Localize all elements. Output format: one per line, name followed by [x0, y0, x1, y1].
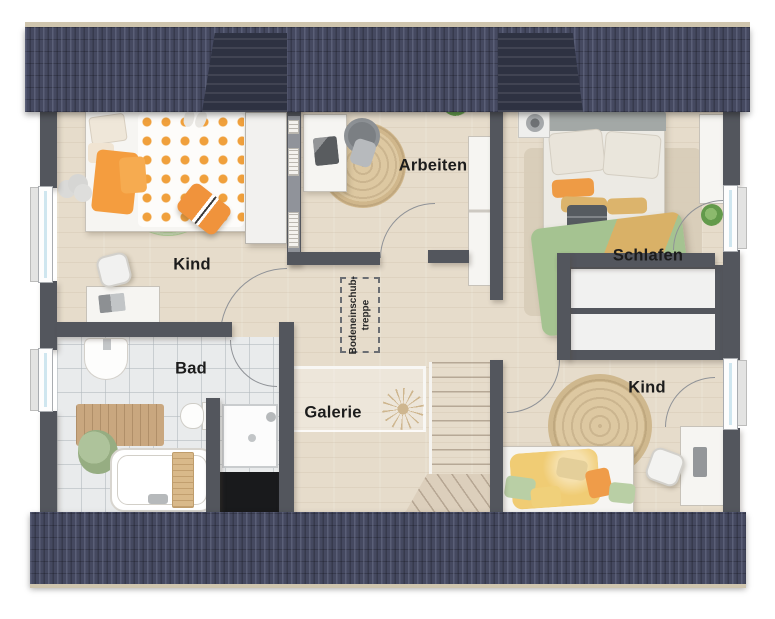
faucet	[103, 339, 111, 350]
room-label-galerie: Galerie	[304, 404, 361, 423]
monitor	[693, 447, 707, 477]
kids-desk-right	[680, 426, 724, 506]
speaker-cone	[526, 114, 544, 132]
window-glass	[729, 190, 732, 247]
wall-ext-left	[40, 281, 57, 350]
floor-void	[220, 472, 279, 513]
window-glass	[44, 353, 47, 407]
floor-plan: Bodeneinschub- treppe Kind Arbeiten Schl…	[0, 0, 775, 619]
monitor	[313, 136, 340, 166]
room-label-arbeiten: Arbeiten	[399, 157, 468, 176]
roof-ridge-line	[25, 22, 750, 27]
roof-top	[25, 27, 750, 112]
wall-bad-galerie	[279, 322, 294, 513]
window-glass	[44, 191, 47, 278]
bath-caddy	[172, 452, 194, 508]
roof-bottom	[30, 512, 746, 586]
bathtub	[110, 448, 214, 512]
cloud-lobe	[74, 184, 92, 202]
built-in-wardrobe	[567, 265, 723, 360]
toilet-bowl	[180, 403, 204, 429]
shower-drain	[248, 434, 256, 442]
wall-ext-right	[723, 428, 740, 515]
wardrobe-shelf	[571, 314, 715, 350]
laptop	[98, 293, 126, 314]
shower	[222, 404, 278, 468]
headboard	[542, 109, 666, 131]
sideboard-arbeiten	[468, 136, 492, 286]
speaker-box	[518, 108, 550, 138]
office-desk	[303, 114, 347, 192]
wardrobe-kind-left	[245, 112, 287, 244]
wardrobe-shelf	[571, 269, 715, 308]
sink	[84, 338, 128, 380]
book-stack	[288, 120, 299, 134]
green-pillow	[608, 482, 636, 505]
wall-kind-bad	[57, 322, 232, 337]
room-label-kind-left: Kind	[173, 256, 210, 275]
dried-grass-plant	[382, 388, 424, 430]
kids-desk	[86, 286, 160, 326]
orange-pillow	[119, 156, 147, 194]
yellow-pillow	[530, 485, 562, 508]
pillow	[88, 113, 128, 146]
loft-ladder-label: Bodeneinschub- treppe	[348, 276, 373, 354]
window-sill	[737, 360, 747, 426]
window-sill	[737, 187, 747, 249]
room-label-kind-right: Kind	[628, 379, 665, 398]
dormer-roof-right	[498, 33, 583, 112]
roof-gutter-line	[30, 584, 746, 588]
book-stack	[288, 212, 299, 248]
wall-arbeiten-bottom	[428, 250, 469, 263]
wall-stairs-right	[490, 360, 503, 513]
wall-wardrobe-left	[557, 253, 570, 360]
kids-bed-right	[498, 446, 634, 513]
tub-faucet	[148, 494, 168, 504]
room-label-bad: Bad	[175, 360, 207, 379]
tan-pillow	[607, 197, 648, 214]
orange-pillow	[552, 178, 595, 198]
wall-arbeiten-bottom	[287, 252, 380, 265]
wall-ext-left	[40, 411, 57, 515]
window-glass	[729, 363, 732, 425]
wall-ext-left	[40, 106, 57, 188]
loft-ladder-hatch: Bodeneinschub- treppe	[340, 277, 380, 353]
cloud-side-table	[58, 174, 94, 204]
pillow	[602, 131, 662, 180]
shower-head	[266, 412, 276, 422]
wall-ext-right	[723, 106, 740, 185]
dormer-roof-left	[202, 33, 287, 112]
room-label-schlafen: Schlafen	[613, 247, 683, 266]
wall-shower-partition	[206, 398, 220, 513]
staircase-flight	[429, 362, 490, 478]
sideboard-schlafen	[699, 114, 725, 204]
pillow	[548, 128, 606, 175]
wall-ext-right	[723, 250, 740, 360]
book-stack	[288, 148, 299, 176]
